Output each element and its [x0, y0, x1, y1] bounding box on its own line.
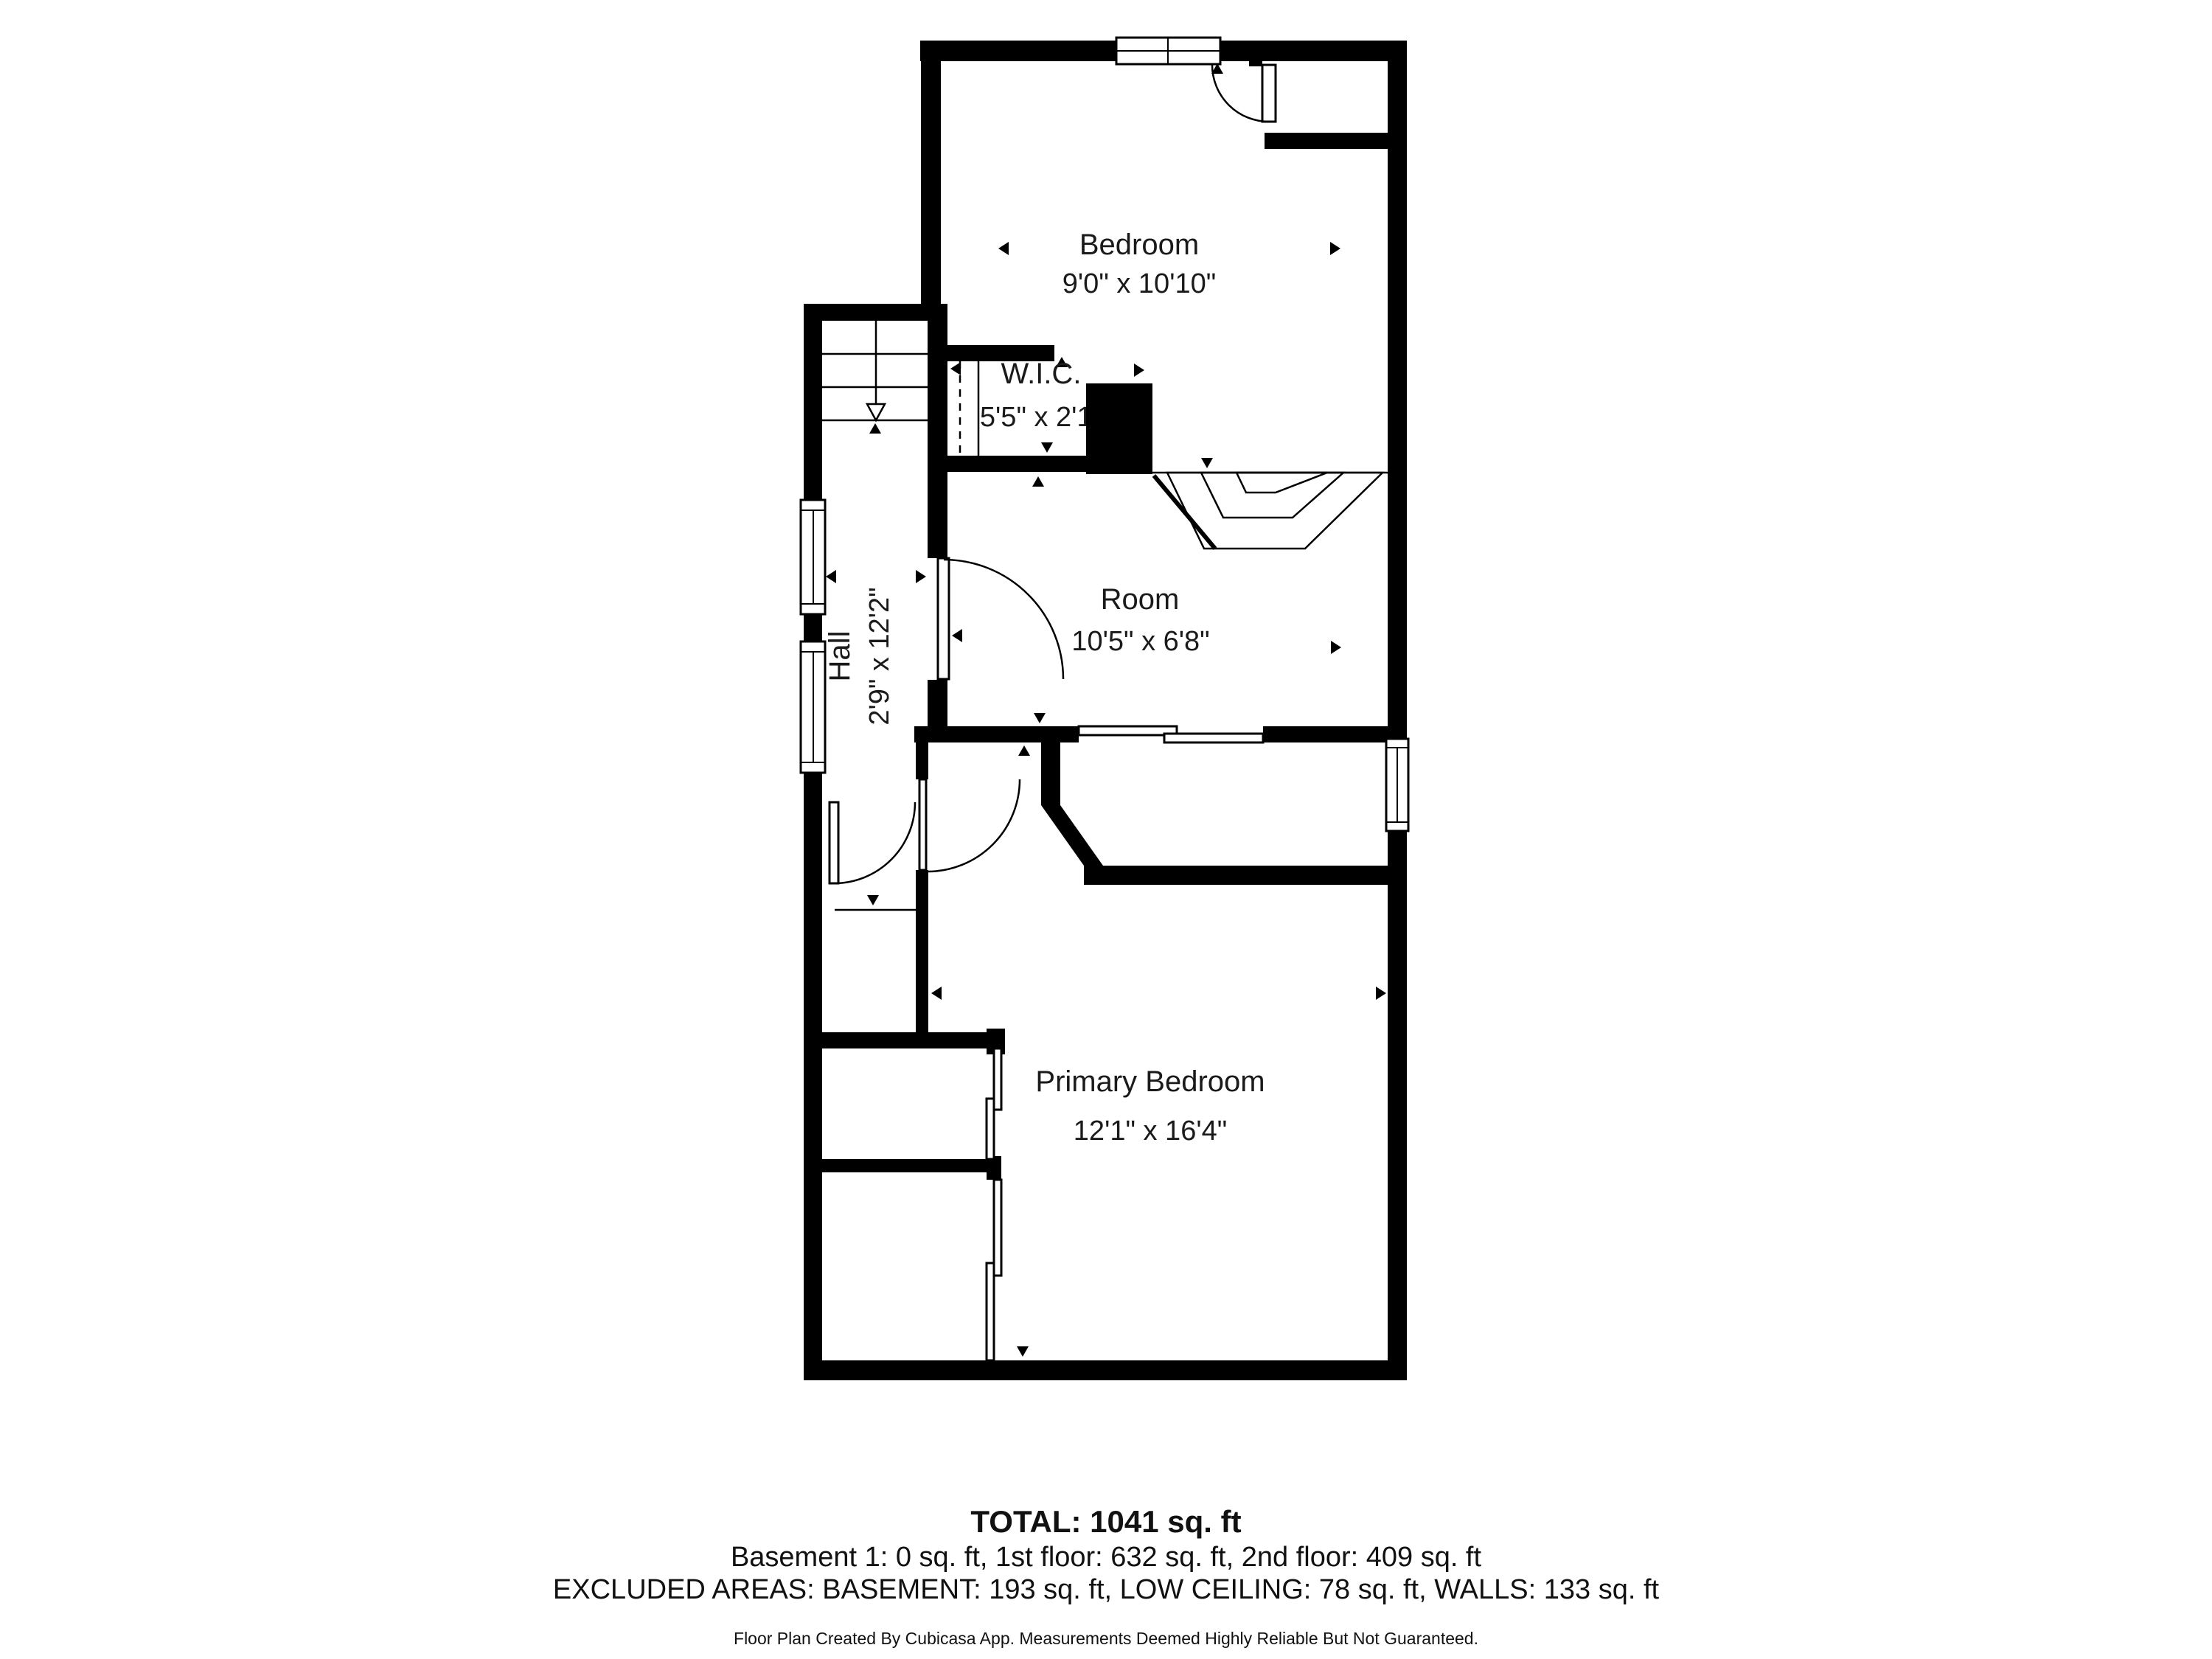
- wall-stairwing-top: [804, 304, 947, 321]
- room-label: Room: [1101, 583, 1180, 616]
- arrow-down: [1017, 1346, 1029, 1357]
- arrow-down: [867, 895, 879, 905]
- wic-dims: 5'5" x 2'1": [980, 402, 1102, 433]
- arrow-right: [916, 570, 926, 583]
- wall-nook-bottom: [1084, 866, 1388, 885]
- closet-lower-slider-b: [987, 1263, 994, 1360]
- closet-lower-slider-a: [994, 1180, 1001, 1276]
- room-door-leaf: [938, 558, 949, 679]
- vestibule-door-leaf: [829, 802, 838, 883]
- arrow-up: [1032, 476, 1044, 487]
- hall-label: Hall: [824, 631, 856, 682]
- trapezoid-middle: [1201, 473, 1343, 518]
- wall-left-c: [804, 773, 822, 1380]
- wall-closet-top: [822, 1032, 987, 1048]
- primary-door-jamb: [919, 779, 926, 870]
- arrow-right: [1376, 987, 1386, 1000]
- nook-sliding-window-sash-left: [1079, 726, 1177, 735]
- floor-areas-text: Basement 1: 0 sq. ft, 1st floor: 632 sq.…: [731, 1542, 1482, 1573]
- wall-room-bottom-left: [914, 726, 1079, 742]
- arrow-left: [950, 362, 961, 375]
- arrow-left: [998, 242, 1009, 255]
- arrow-down: [1201, 458, 1213, 468]
- room-dims: 10'5" x 6'8": [1071, 626, 1209, 657]
- arrow-left: [931, 987, 942, 1000]
- wall-right: [1388, 41, 1407, 1380]
- stairwell-edge: [1154, 476, 1215, 549]
- wall-bedroom-left: [921, 41, 941, 321]
- wall-nook-left: [1041, 742, 1060, 805]
- hall-dims: 2'9" x 12'2": [864, 587, 895, 725]
- arrow-down: [1041, 442, 1053, 453]
- wall-nook-diagonal: [1041, 805, 1103, 866]
- wall-hall-right-upper: [928, 321, 947, 558]
- wic-label: W.I.C.: [1001, 358, 1082, 390]
- disclaimer-text: Floor Plan Created By Cubicasa App. Meas…: [734, 1629, 1478, 1648]
- vestibule-door-swing: [834, 802, 915, 883]
- floor-plan-canvas: Bedroom 9'0" x 10'10" W.I.C. 5'5" x 2'1"…: [0, 0, 2212, 1659]
- wall-closet-divider: [822, 1159, 987, 1172]
- wall-bottom: [804, 1360, 1407, 1380]
- floor-plan-page: Bedroom 9'0" x 10'10" W.I.C. 5'5" x 2'1"…: [0, 0, 2212, 1659]
- area-summary: TOTAL: 1041 sq. ft Basement 1: 0 sq. ft,…: [553, 1504, 1660, 1648]
- primary-bedroom-dims: 12'1" x 16'4": [1074, 1116, 1227, 1147]
- primary-door-swing: [928, 779, 1020, 872]
- arrow-left: [952, 629, 962, 642]
- arrow-right: [1331, 641, 1341, 654]
- wall-room-bottom-right: [1263, 726, 1388, 742]
- wall-block-overlay: [1086, 383, 1152, 474]
- staircase: [822, 321, 928, 420]
- wall-niche-jamb: [1249, 41, 1262, 66]
- wall-niche-bottom: [1265, 133, 1388, 149]
- bedroom-dims: 9'0" x 10'10": [1062, 268, 1216, 299]
- arrow-right: [1134, 364, 1144, 377]
- wall-hall-right-lower: [928, 680, 947, 726]
- arrow-down: [1034, 713, 1046, 723]
- niche-door-leaf: [1262, 65, 1276, 122]
- nook-sliding-window-sash-right: [1164, 734, 1263, 742]
- wall-left-a: [804, 304, 822, 500]
- room-labels: Bedroom 9'0" x 10'10" W.I.C. 5'5" x 2'1"…: [824, 229, 1265, 1147]
- primary-bedroom-label: Primary Bedroom: [1035, 1065, 1265, 1098]
- total-area-text: TOTAL: 1041 sq. ft: [970, 1504, 1241, 1539]
- arrow-right: [1330, 242, 1340, 255]
- wall-left-b: [804, 614, 822, 641]
- stair-down-arrow: [867, 404, 885, 420]
- bedroom-label: Bedroom: [1079, 229, 1199, 261]
- arrow-up: [869, 423, 881, 434]
- trapezoid-inner: [1237, 473, 1327, 493]
- arrow-left: [826, 570, 836, 583]
- wall-vestibule-lower: [916, 870, 928, 1048]
- trapezoid-outer: [1167, 473, 1382, 549]
- wall-vestibule-upper: [916, 726, 928, 779]
- wall-wic-bottom: [947, 456, 1086, 472]
- closet-upper-slider-b: [987, 1099, 994, 1159]
- arrow-up: [1018, 745, 1030, 756]
- excluded-areas-text: EXCLUDED AREAS: BASEMENT: 193 sq. ft, LO…: [553, 1574, 1660, 1605]
- room-door-swing: [944, 560, 1063, 679]
